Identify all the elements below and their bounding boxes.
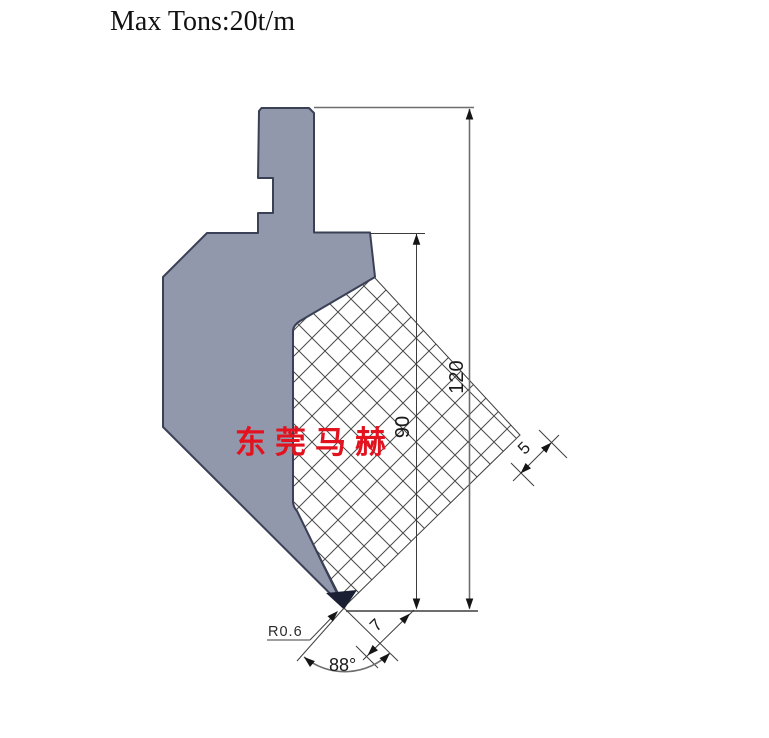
punch-drawing: 120 90 5 7 [0,0,769,738]
dim-5: 5 [511,430,567,486]
dim-angle-label: 88° [329,655,356,675]
dim-angle-88: 88° [302,650,393,675]
dim-90-label: 90 [392,416,414,438]
punch-tip [326,590,357,610]
max-tons-title: Max Tons:20t/m [110,6,295,38]
dim-radius-label: R0.6 [268,624,303,640]
dim-5-label: 5 [514,438,534,458]
dim-120-label: 120 [446,360,468,393]
tip-extension-left [297,608,344,661]
page: Max Tons:20t/m 120 [0,0,769,738]
watermark-text: 东莞马赫 [235,425,395,460]
